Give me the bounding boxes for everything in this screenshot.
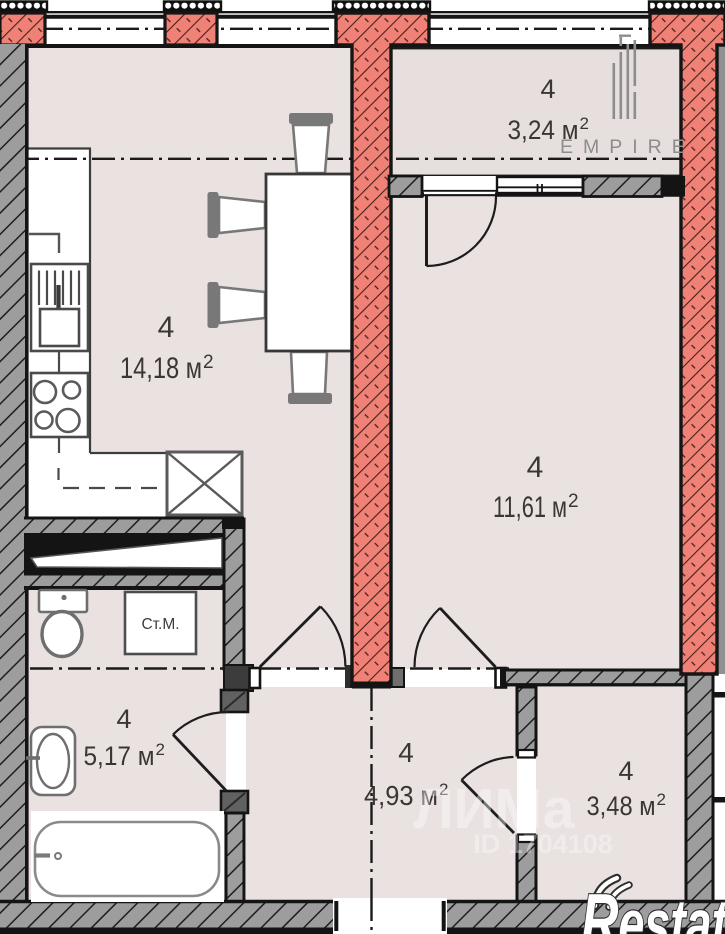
svg-text:4: 4	[116, 704, 131, 734]
svg-text:4: 4	[527, 451, 544, 484]
svg-text:2: 2	[657, 790, 666, 809]
svg-text:2: 2	[568, 491, 579, 512]
svg-text:2: 2	[203, 352, 214, 373]
svg-text:14,18 м: 14,18 м	[120, 352, 202, 385]
svg-text:Ст.М.: Ст.М.	[141, 616, 179, 633]
svg-text:3,48 м: 3,48 м	[587, 791, 656, 821]
svg-text:4: 4	[618, 756, 633, 786]
svg-text:ID 1704108: ID 1704108	[473, 829, 613, 859]
svg-text:4: 4	[398, 737, 414, 768]
svg-text:4: 4	[158, 311, 175, 344]
svg-text:2: 2	[156, 740, 165, 759]
svg-text:11,61 м: 11,61 м	[493, 491, 567, 524]
svg-text:EMPIRE: EMPIRE	[560, 136, 695, 158]
svg-text:4: 4	[540, 74, 555, 104]
svg-text:Restate: Restate	[581, 877, 725, 934]
svg-text:5,17 м: 5,17 м	[84, 741, 155, 771]
svg-text:2: 2	[580, 114, 589, 133]
